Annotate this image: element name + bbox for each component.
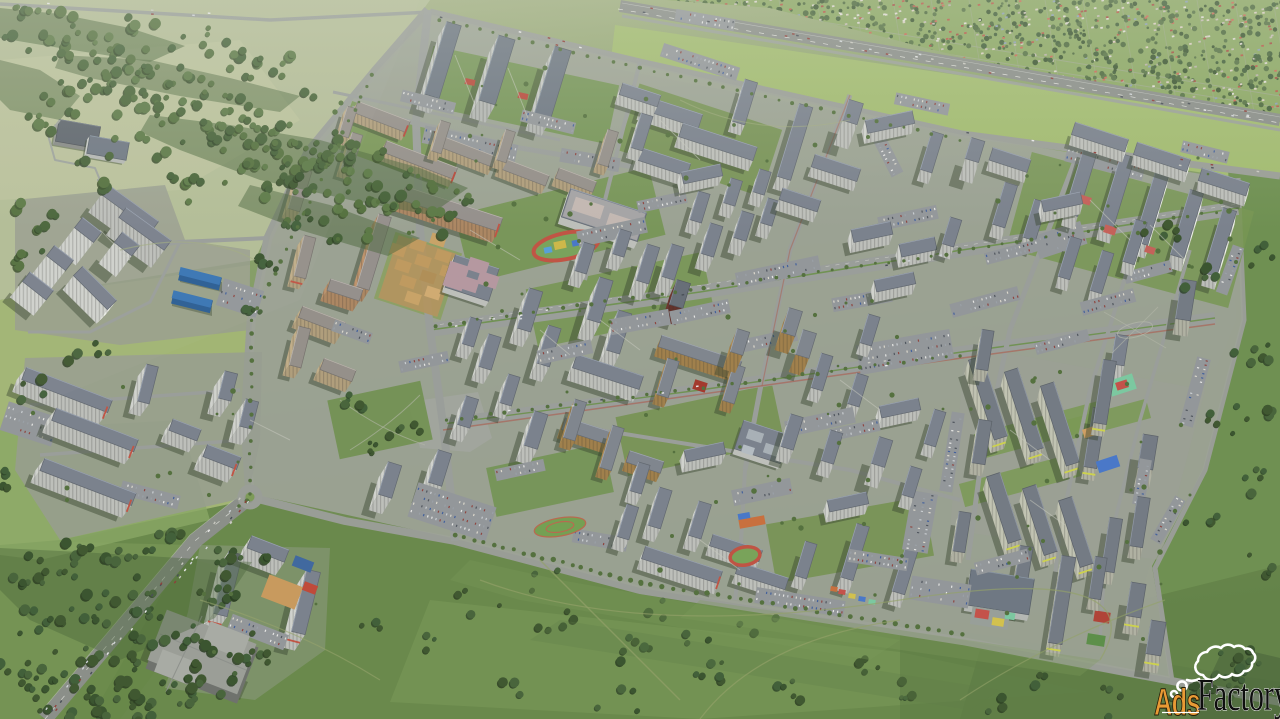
svg-text:Ads: Ads [1154,682,1200,719]
svg-text:Factory: Factory [1197,669,1280,719]
